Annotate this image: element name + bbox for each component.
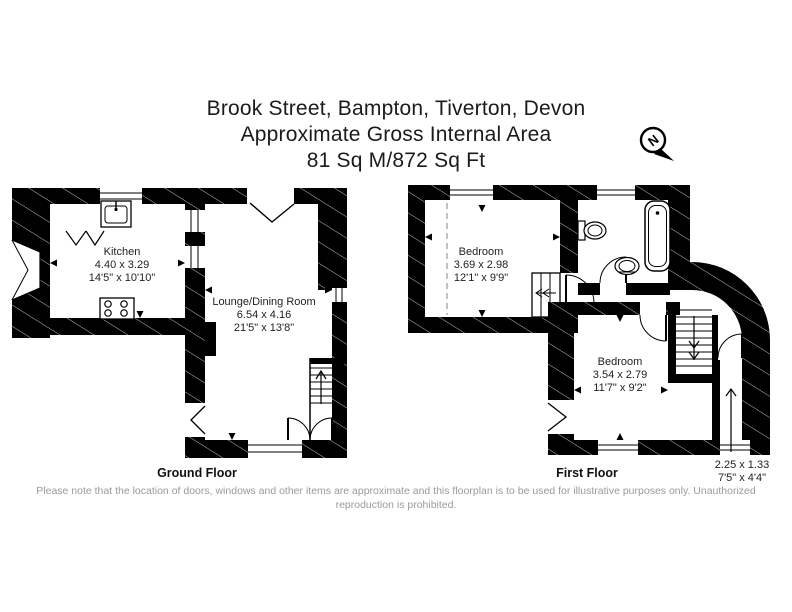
stairs-down	[668, 302, 718, 383]
room-imperial-dims: 12'1" x 9'9"	[454, 272, 508, 285]
room-name: Bedroom	[454, 246, 508, 259]
room-name: Lounge/Dining Room	[212, 296, 315, 309]
bedroom1-label: Bedroom 3.69 x 2.98 12'1" x 9'9"	[454, 246, 508, 285]
compass-icon: N	[641, 128, 674, 161]
disclaimer-text: Please note that the location of doors, …	[36, 484, 756, 512]
room-name: Bedroom	[593, 356, 647, 369]
first-floor-plan	[408, 185, 770, 455]
room-metric-dims: 6.54 x 4.16	[212, 309, 315, 322]
floorplan-drawing: N	[0, 0, 792, 612]
first-floor-caption: First Floor	[556, 466, 618, 480]
bedroom2-label: Bedroom 3.54 x 2.79 11'7" x 9'2"	[593, 356, 647, 395]
open-doors	[250, 203, 294, 222]
room-name: Kitchen	[89, 246, 155, 259]
sink-icon	[101, 201, 131, 227]
toilet-icon	[578, 221, 606, 240]
store-dims-label: 2.25 x 1.33 7'5" x 4'4"	[715, 459, 769, 485]
fold-door	[66, 231, 86, 245]
room-metric-dims: 3.54 x 2.79	[593, 369, 647, 382]
fold-door	[86, 231, 104, 245]
lounge-label: Lounge/Dining Room 6.54 x 4.16 21'5" x 1…	[212, 296, 315, 335]
ground-floor-caption: Ground Floor	[157, 466, 237, 480]
room-metric-dims: 3.69 x 2.98	[454, 259, 508, 272]
room-imperial-dims: 11'7" x 9'2"	[593, 382, 647, 395]
stove-icon	[100, 298, 134, 319]
kitchen-label: Kitchen 4.40 x 3.29 14'5" x 10'10"	[89, 246, 155, 285]
room-imperial-dims: 14'5" x 10'10"	[89, 272, 155, 285]
basin-icon	[615, 258, 639, 275]
room-metric-dims: 4.40 x 3.29	[89, 259, 155, 272]
room-metric-dims: 2.25 x 1.33	[715, 459, 769, 472]
room-imperial-dims: 21'5" x 13'8"	[212, 322, 315, 335]
floorplan-page: Brook Street, Bampton, Tiverton, Devon A…	[0, 0, 792, 612]
bathtub-icon	[645, 201, 670, 271]
